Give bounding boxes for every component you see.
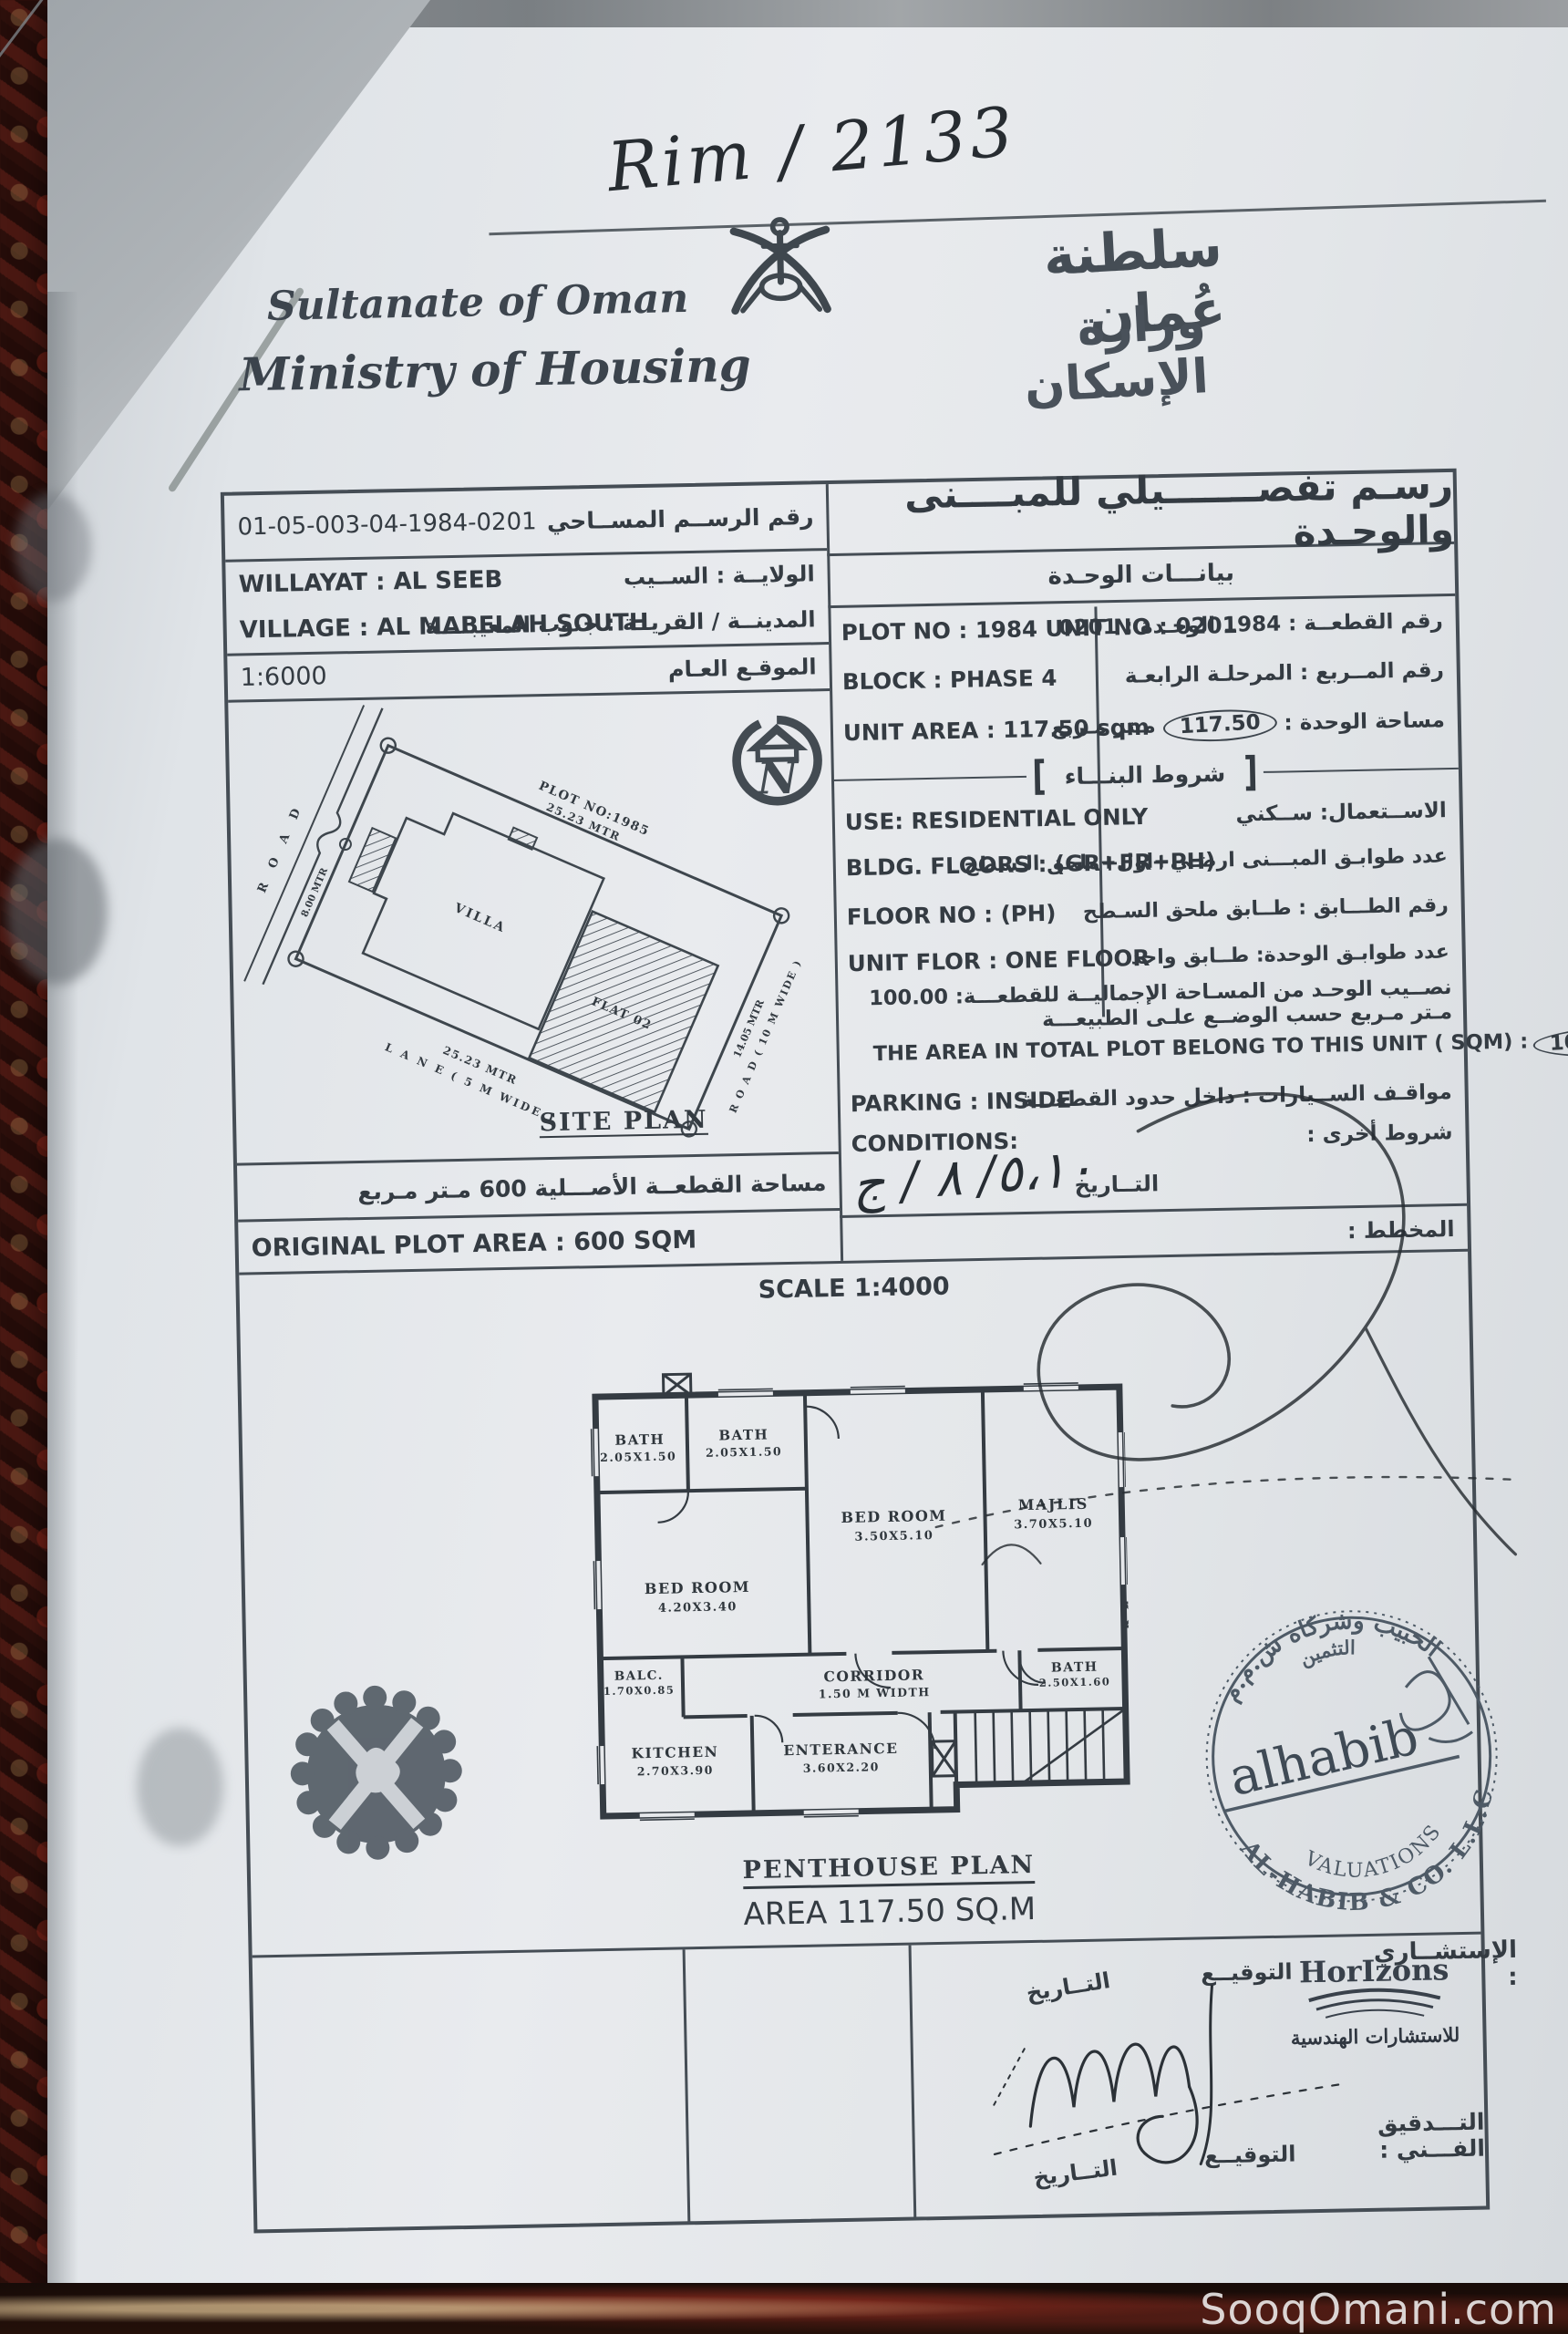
svg-text:N: N <box>755 752 800 805</box>
room-enterance-name: ENTERANCE <box>783 1740 898 1759</box>
room-corridor-name: CORRIDOR <box>823 1666 924 1685</box>
floors-ar: عدد طوابـق المبـــنى ارضـي+اول+ملحق الـس… <box>964 845 1448 877</box>
room-balc-dim: 1.70X0.85 <box>603 1684 676 1699</box>
bracket-open: [ <box>1032 753 1047 800</box>
rule <box>831 776 1026 781</box>
room-kitchen-name: KITCHEN <box>631 1743 718 1762</box>
header-ministry-ar: وزارة الإسكان <box>894 294 1210 420</box>
block-en: BLOCK : PHASE 4 <box>842 665 1057 696</box>
survey-box: 01-05-003-04-1984-0201 رقم الرســم المسـ… <box>224 484 843 1273</box>
site-scale: 1:6000 <box>240 662 327 692</box>
area-ar-unit: مـتر مـربع <box>1051 714 1156 739</box>
svg-text:AL-HABIB & CO. L.L.C: AL-HABIB & CO. L.L.C <box>1232 1779 1521 1928</box>
room-bath3-dim: 2.50X1.60 <box>1039 1675 1111 1689</box>
drawing-no-label-ar: رقم الرســم المســاحي <box>547 503 814 535</box>
area-ar-value: 117.50 <box>1162 707 1277 744</box>
use-en: USE: RESIDENTIAL ONLY <box>845 803 1149 835</box>
location-label-ar: الموقـع العـام <box>668 654 817 682</box>
orig-area-en: ORIGINAL PLOT AREA : 600 SQM <box>251 1225 696 1262</box>
room-bath3-name: BATH <box>1051 1660 1099 1676</box>
oman-national-emblem-icon <box>715 214 846 325</box>
floor-no-ar: رقم الطـــابق : طــابق ملحق السـطح <box>1083 894 1449 924</box>
site-plan-title: SITE PLAN <box>510 1105 738 1138</box>
unit-title-ar: رسـم تفصـــــــيلي للمبــــنى والوحـدة <box>826 462 1455 563</box>
official-rosette-stamp <box>273 1680 490 1871</box>
room-bath1-dim: 2.05X1.50 <box>600 1449 676 1464</box>
room-bedroom1-name: BED ROOM <box>645 1578 750 1597</box>
room-corridor-dim: 1.50 M WIDTH <box>819 1685 931 1700</box>
penthouse-plan-title: PENTHOUSE PLAN <box>634 1849 1144 1887</box>
room-kitchen-dim: 2.70X3.90 <box>637 1763 714 1779</box>
north-arrow-icon: N <box>728 711 827 810</box>
willayat-ar: الولايــة : الســيب <box>624 561 815 590</box>
alhabib-stamp: الحبيب وشركاه ش.م.م التثمين alhabib AL-H… <box>1152 1584 1551 1928</box>
unit-floor-ar: عدد طوابـق الوحدة: طــابق واحد <box>1130 941 1449 970</box>
share-en-value: 100.00 SQM. <box>1532 1020 1568 1061</box>
drawing-no-value: 01-05-003-04-1984-0201 <box>237 508 537 541</box>
header-country-en: Sultanate of Oman <box>266 275 688 330</box>
rule <box>1264 768 1459 773</box>
site-villa-label: VILLA <box>451 901 509 936</box>
planner-signature-scribble <box>862 1006 1534 1627</box>
unit-subtitle-ar: بيانـــات الوحـدة <box>1047 560 1234 591</box>
unit-floor-en: UNIT FLOR : ONE FLOOR <box>848 945 1150 976</box>
penthouse-plan-area: AREA 117.50 SQ.M <box>634 1889 1146 1936</box>
room-bath1-name: BATH <box>614 1431 665 1449</box>
use-ar: الاســتعمال: ســكني <box>1235 799 1447 826</box>
audit-label-ar: التـــدقيق الفـــني : <box>1372 2109 1485 2164</box>
handwritten-reference: Rim / 2133 <box>604 92 1020 207</box>
site-plan-canvas: PLOT NO:1985 25.23 MTR VILLA FLAT 02 25.… <box>228 686 839 1163</box>
unit-title-row: رسـم تفصـــــــيلي للمبــــنى والوحـدة <box>826 472 1454 556</box>
band-divider-1 <box>683 1949 691 2223</box>
floor-no-en: FLOOR NO : (PH) <box>847 900 1057 930</box>
consultant-signature <box>973 1956 1360 2191</box>
room-bath2-name: BATH <box>718 1426 769 1443</box>
room-bath2-dim: 2.05X1.50 <box>706 1444 782 1460</box>
room-balc-name: BALC. <box>614 1668 664 1684</box>
willayat-en: WILLAYAT : AL SEEB <box>238 566 502 599</box>
room-bedroom1-dim: 4.20X3.40 <box>658 1600 738 1616</box>
watermark: SooqOmani.com <box>1200 2285 1557 2334</box>
orig-area-ar: مساحة القطعــة الأصـــلية 600 مـتر مـربع <box>357 1170 827 1205</box>
bracket-close: ] <box>1243 749 1259 796</box>
alhabib-bottom: AL-HABIB & CO. L.L.C <box>1232 1779 1521 1928</box>
survey-row-location: WILLAYAT : AL SEEB الولايــة : الســيب V… <box>225 551 829 656</box>
block-ar: رقم المــربع : المرحلـة الرابعـة <box>1125 658 1444 688</box>
band-divider-2 <box>909 1946 917 2219</box>
alhabib-name: alhabib <box>1223 1707 1424 1808</box>
survey-row-drawing-no: 01-05-003-04-1984-0201 رقم الرســم المسـ… <box>224 484 827 563</box>
area-ar-label: مساحة الوحدة : <box>1284 708 1445 735</box>
header-ministry-en: Ministry of Housing <box>239 338 751 402</box>
building-conditions-title: شروط البنـــاء <box>1051 759 1238 790</box>
site-road-left: R O A D <box>255 800 306 894</box>
room-enterance-dim: 3.60X2.20 <box>803 1760 880 1775</box>
